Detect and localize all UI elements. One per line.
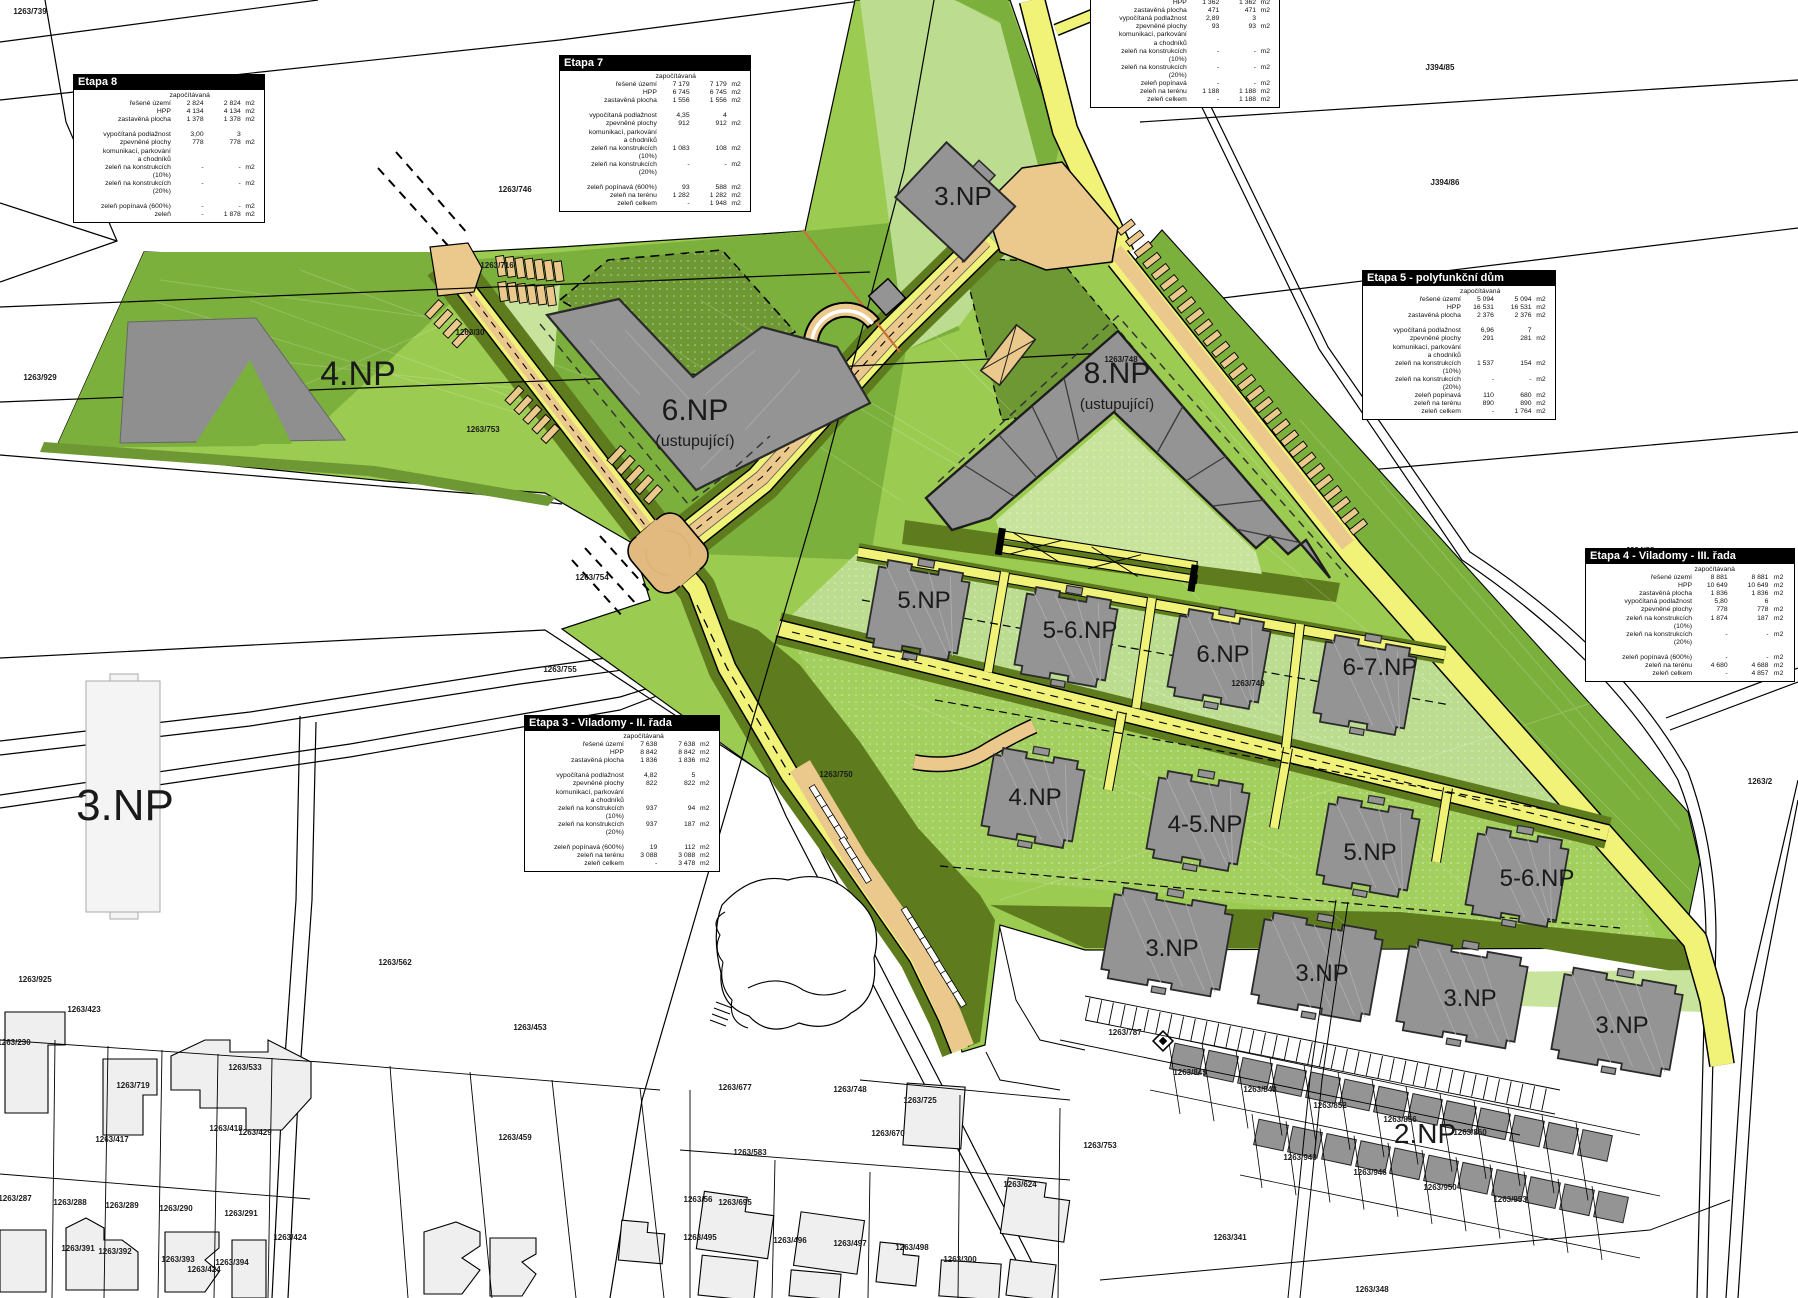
svg-text:1263/852: 1263/852 (1313, 1101, 1347, 1110)
svg-text:1263/746: 1263/746 (498, 185, 532, 194)
svg-text:3.NP: 3.NP (1295, 960, 1348, 987)
svg-text:1263/393: 1263/393 (161, 1255, 195, 1264)
svg-text:1263/753: 1263/753 (466, 425, 500, 434)
svg-text:1263/497: 1263/497 (833, 1239, 867, 1248)
svg-text:1263/289: 1263/289 (105, 1201, 139, 1210)
svg-text:(ustupující): (ustupující) (1080, 396, 1154, 413)
svg-text:1263/624: 1263/624 (1003, 1180, 1037, 1189)
svg-text:1263/929: 1263/929 (23, 373, 57, 382)
svg-text:1263/341: 1263/341 (1213, 1233, 1247, 1242)
svg-text:1263/496: 1263/496 (773, 1236, 807, 1245)
svg-text:J394/85: J394/85 (1426, 63, 1455, 72)
svg-text:1263/287: 1263/287 (0, 1194, 32, 1203)
svg-text:1263/424: 1263/424 (273, 1233, 307, 1242)
svg-text:1263/860: 1263/860 (1453, 1128, 1487, 1137)
svg-text:1263/748: 1263/748 (833, 1085, 867, 1094)
svg-text:3.NP: 3.NP (1145, 935, 1198, 962)
svg-text:J394/86: J394/86 (1431, 178, 1460, 187)
svg-text:5-6.NP: 5-6.NP (1500, 865, 1575, 892)
svg-text:1263/429: 1263/429 (238, 1128, 272, 1137)
svg-text:1263/856: 1263/856 (1383, 1115, 1417, 1124)
svg-text:1263/845: 1263/845 (1173, 1068, 1207, 1077)
svg-text:1263/753: 1263/753 (1083, 1141, 1117, 1150)
svg-text:1263/943: 1263/943 (1283, 1153, 1317, 1162)
svg-text:1263/562: 1263/562 (378, 958, 412, 967)
svg-text:1263/423: 1263/423 (67, 1005, 101, 1014)
svg-text:1263/30: 1263/30 (456, 328, 485, 337)
svg-text:1263/848: 1263/848 (1243, 1085, 1277, 1094)
svg-text:1263/583: 1263/583 (733, 1148, 767, 1157)
svg-text:1263/739: 1263/739 (13, 7, 47, 16)
svg-text:1263/725: 1263/725 (903, 1096, 937, 1105)
svg-text:1263/695: 1263/695 (718, 1198, 752, 1207)
svg-text:1263/498: 1263/498 (895, 1243, 929, 1252)
svg-text:1263/670: 1263/670 (871, 1129, 905, 1138)
svg-text:1263/748: 1263/748 (1104, 355, 1138, 364)
svg-text:5.NP: 5.NP (897, 587, 950, 614)
svg-text:1263/755: 1263/755 (543, 665, 577, 674)
svg-text:1263/300: 1263/300 (943, 1255, 977, 1264)
svg-text:1263/749: 1263/749 (1231, 679, 1265, 688)
svg-text:5-6.NP: 5-6.NP (1043, 617, 1118, 644)
svg-text:1263/533: 1263/533 (228, 1063, 262, 1072)
svg-text:1263/417: 1263/417 (95, 1135, 129, 1144)
svg-text:1263/750: 1263/750 (819, 770, 853, 779)
svg-text:6.NP: 6.NP (662, 394, 729, 427)
svg-text:4-5.NP: 4-5.NP (1168, 811, 1243, 838)
svg-text:1263/424: 1263/424 (187, 1265, 221, 1274)
svg-text:1263/392: 1263/392 (98, 1247, 132, 1256)
svg-text:1263/716: 1263/716 (480, 261, 514, 270)
svg-text:1263/290: 1263/290 (159, 1204, 193, 1213)
svg-text:1263/2: 1263/2 (1748, 777, 1773, 786)
svg-text:3.NP: 3.NP (934, 181, 992, 211)
svg-text:1263/56: 1263/56 (684, 1195, 713, 1204)
svg-text:3.NP: 3.NP (76, 781, 174, 830)
svg-text:1263/291: 1263/291 (224, 1209, 258, 1218)
svg-text:1263/391: 1263/391 (61, 1244, 95, 1253)
svg-text:1263/453: 1263/453 (513, 1023, 547, 1032)
svg-text:3.NP: 3.NP (1595, 1012, 1648, 1039)
svg-text:1263/719: 1263/719 (116, 1081, 150, 1090)
svg-text:4.NP: 4.NP (1008, 784, 1061, 811)
svg-text:(ustupující): (ustupující) (655, 433, 734, 450)
svg-text:1263/787: 1263/787 (1108, 1028, 1142, 1037)
svg-text:3.NP: 3.NP (1443, 985, 1496, 1012)
svg-text:1263/677: 1263/677 (718, 1083, 752, 1092)
svg-text:1263/754: 1263/754 (575, 573, 609, 582)
svg-text:1263/459: 1263/459 (498, 1133, 532, 1142)
svg-text:1263/348: 1263/348 (1355, 1285, 1389, 1294)
svg-text:1263/288: 1263/288 (53, 1198, 87, 1207)
svg-text:6-7.NP: 6-7.NP (1343, 654, 1418, 681)
svg-text:4.NP: 4.NP (320, 355, 396, 393)
svg-text:1263/495: 1263/495 (683, 1233, 717, 1242)
svg-text:5.NP: 5.NP (1343, 839, 1396, 866)
svg-text:1263/946: 1263/946 (1353, 1168, 1387, 1177)
svg-text:1263/950: 1263/950 (1423, 1183, 1457, 1192)
svg-text:1263/925: 1263/925 (18, 975, 52, 984)
svg-text:1263/230: 1263/230 (0, 1038, 31, 1047)
svg-text:1263/953: 1263/953 (1493, 1195, 1527, 1204)
svg-text:6.NP: 6.NP (1196, 641, 1249, 668)
